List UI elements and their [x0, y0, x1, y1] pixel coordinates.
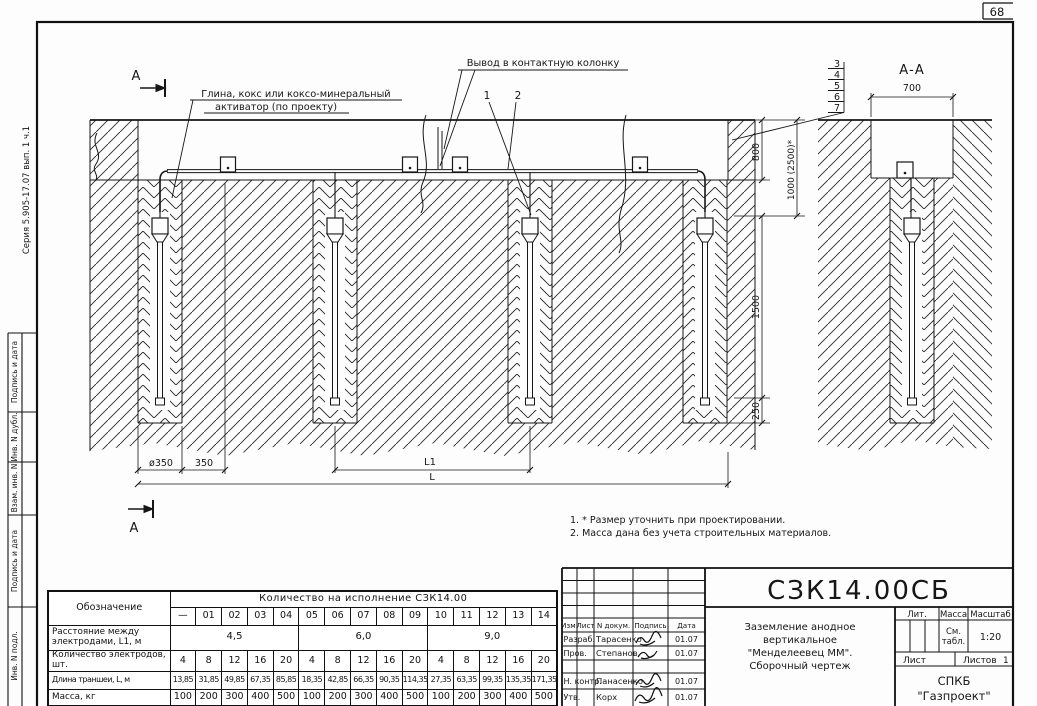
drawing-title-line1: Заземление анодное	[745, 622, 856, 633]
length-value: 99,35	[480, 671, 506, 689]
length-value: 27,35	[428, 671, 454, 689]
length-value: 42,85	[325, 671, 351, 689]
count-value: 16	[247, 650, 273, 671]
length-value: 171,35	[531, 671, 557, 689]
exec-col: 13	[505, 607, 531, 625]
drawing-title-line4: Сборочный чертеж	[749, 661, 850, 672]
date-developer: 01.07	[675, 635, 698, 644]
exec-col: 06	[325, 607, 351, 625]
exec-col: 11	[454, 607, 480, 625]
mass-value-line1: См.	[946, 627, 961, 637]
col-date: Дата	[677, 621, 696, 630]
count-value: 12	[351, 650, 377, 671]
mass-value: 100	[299, 689, 325, 706]
mass-value: 200	[454, 689, 480, 706]
doc-number: СЗК14.00СБ	[767, 576, 951, 606]
dim-350: 350	[195, 458, 213, 469]
title-block-texts: СЗК14.00СБ Изм. Лист N докум. Подпись Да…	[561, 576, 1011, 703]
count-value: 8	[196, 650, 222, 671]
callout-2: 2	[515, 90, 522, 102]
spec-header-designation: Обозначение	[48, 591, 170, 625]
mass-value: 400	[376, 689, 402, 706]
mass-value-line2: табл.	[942, 637, 966, 647]
mass-value: 500	[402, 689, 428, 706]
note-1: 1. * Размер уточнить при проектировании.	[570, 515, 785, 526]
length-value: 13,85	[170, 671, 196, 689]
callout-1: 1	[484, 90, 491, 102]
callout-7: 7	[834, 103, 840, 114]
length-value: 49,85	[222, 671, 248, 689]
drawing-title-line3: "Менделеевец ММ".	[748, 648, 853, 659]
count-value: 4	[170, 650, 196, 671]
spec-row-mass-label: Масса, кг	[48, 689, 170, 706]
length-value: 90,35	[376, 671, 402, 689]
dim-1500: 1500	[751, 295, 762, 319]
col-sign: Подпись	[634, 621, 666, 630]
count-value: 20	[531, 650, 557, 671]
length-value: 67,35	[247, 671, 273, 689]
dim-dia350: ø350	[149, 458, 173, 469]
mass-value: 400	[247, 689, 273, 706]
col-ndoc: N докум.	[597, 621, 630, 630]
length-value: 63,35	[454, 671, 480, 689]
series-label: Серия 5.905-17.07 вып. 1 ч.1	[22, 126, 32, 254]
mass-value: 200	[196, 689, 222, 706]
contact-column-label: Вывод в контактную колонку	[467, 58, 620, 69]
section-aa	[818, 120, 992, 451]
count-value: 8	[325, 650, 351, 671]
dim-l: L	[429, 472, 435, 483]
count-value: 16	[505, 650, 531, 671]
margin-label-5: Инв. N подл.	[10, 631, 19, 681]
signature-checker	[638, 651, 657, 659]
sheet-number: 68	[990, 5, 1005, 19]
spacing-value: 6,0	[299, 625, 428, 650]
dim-800: 800	[751, 143, 762, 161]
exec-col: 10	[428, 607, 454, 625]
length-value: 66,35	[351, 671, 377, 689]
length-value: 135,35	[505, 671, 531, 689]
mass-value: 200	[325, 689, 351, 706]
margin-label-4: Подпись и дата	[10, 530, 19, 592]
exec-col: —	[170, 607, 196, 625]
col-list: Лист	[576, 621, 594, 630]
name-approver: Корх	[596, 692, 617, 702]
margin-label-2: Инв. N дубл.	[10, 412, 19, 461]
count-value: 20	[273, 650, 299, 671]
callout-6: 6	[834, 92, 840, 103]
count-value: 4	[428, 650, 454, 671]
exec-col: 07	[351, 607, 377, 625]
mass-value: 300	[480, 689, 506, 706]
exec-col: 01	[196, 607, 222, 625]
org-name-line2: "Газпроект"	[917, 689, 990, 703]
dim-700: 700	[903, 83, 921, 94]
date-approver: 01.07	[675, 693, 698, 702]
role-checker: Пров.	[564, 649, 587, 658]
activator-label-line2: активатор (по проекту)	[215, 102, 337, 113]
length-value: 31,85	[196, 671, 222, 689]
length-value: 85,85	[273, 671, 299, 689]
date-checker: 01.07	[675, 649, 698, 658]
spec-header-quantity: Количество на исполнение СЗК14.00	[170, 591, 557, 607]
signature-approver	[635, 688, 662, 703]
callout-3: 3	[834, 59, 840, 70]
callout-4: 4	[834, 70, 840, 81]
count-value: 12	[480, 650, 506, 671]
spacing-value: 9,0	[428, 625, 557, 650]
mass-value: 400	[505, 689, 531, 706]
callout-5: 5	[834, 81, 840, 92]
exec-col: 04	[273, 607, 299, 625]
dim-1000-2500: 1000 (2500)*	[787, 139, 797, 200]
exec-col: 12	[480, 607, 506, 625]
section-letter-top: А	[132, 69, 141, 84]
exec-col: 03	[247, 607, 273, 625]
date-ncontrol: 01.07	[675, 677, 698, 686]
org-name-line1: СПКБ	[938, 674, 971, 688]
exec-col: 02	[222, 607, 248, 625]
count-value: 4	[299, 650, 325, 671]
dim-250: 250	[751, 402, 762, 420]
mass-label: Масса	[940, 610, 967, 620]
mass-value: 100	[428, 689, 454, 706]
section-letter-bottom: А	[130, 521, 139, 536]
length-value: 114,35	[402, 671, 428, 689]
drawing-title-line2: вертикальное	[763, 635, 837, 646]
note-2: 2. Масса дана без учета строительных мат…	[570, 528, 831, 539]
drawing-labels: Глина, кокс или коксо-минеральный актива…	[201, 58, 924, 114]
mass-value: 500	[531, 689, 557, 706]
scale-value: 1:20	[980, 632, 1001, 643]
spec-table: Обозначение Количество на исполнение СЗК…	[47, 590, 558, 706]
count-value: 16	[376, 650, 402, 671]
mass-value: 500	[273, 689, 299, 706]
exec-col: 05	[299, 607, 325, 625]
length-value: 18,35	[299, 671, 325, 689]
role-developer: Разраб.	[564, 635, 595, 644]
dim-l1: L1	[424, 457, 436, 468]
spec-row-spacing-label: Расстояние между электродами, L1, м	[48, 625, 170, 650]
count-value: 8	[454, 650, 480, 671]
mass-value: 100	[170, 689, 196, 706]
exec-col: 08	[376, 607, 402, 625]
drawing-notes: 1. * Размер уточнить при проектировании.…	[570, 515, 831, 539]
exec-col: 09	[402, 607, 428, 625]
spacing-value: 4,5	[170, 625, 299, 650]
margin-stamp-labels: Подпись и дата Инв. N дубл. Взам. инв. N…	[10, 341, 19, 681]
count-value: 20	[402, 650, 428, 671]
main-view-soil	[90, 120, 755, 456]
sheet-label: Лист	[903, 656, 926, 666]
activator-label-line1: Глина, кокс или коксо-минеральный	[201, 89, 390, 100]
mass-value: 300	[222, 689, 248, 706]
exec-col: 14	[531, 607, 557, 625]
mass-value: 300	[351, 689, 377, 706]
count-value: 12	[222, 650, 248, 671]
spec-row-length-label: Длина траншеи, L, м	[48, 671, 170, 689]
role-approver: Утв.	[564, 693, 581, 702]
drawing-sheet: 800 1000 (2500)* 1500 250 ø350 350 L1 L …	[0, 0, 1037, 706]
scale-label: Масштаб	[970, 610, 1010, 620]
sheets-value: 1	[1003, 656, 1009, 666]
name-developer: Тарасенко	[595, 634, 642, 644]
section-aa-title: А-А	[899, 63, 924, 78]
sheets-label: Листов	[963, 656, 997, 666]
lit-label: Лит.	[907, 610, 927, 620]
margin-label-1: Подпись и дата	[10, 341, 19, 403]
spec-row-count-label: Количество электродов, шт.	[48, 650, 170, 671]
name-checker: Степанов	[596, 648, 638, 658]
margin-label-3: Взам. инв. N	[10, 464, 19, 513]
